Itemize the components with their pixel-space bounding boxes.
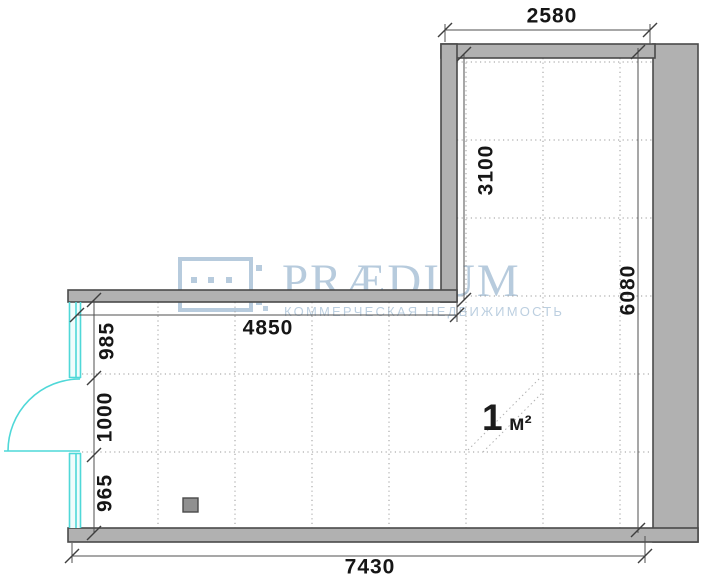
floor-plan-drawing: PRÆDIUM КОММЕРЧЕСКАЯ НЕДВИЖИМОСТЬ [0,0,709,579]
one-square-meter-hatch [468,377,543,452]
praedium-watermark: PRÆDIUM КОММЕРЧЕСКАЯ НЕДВИЖИМОСТЬ [180,255,564,319]
floor-plan-page: PRÆDIUM КОММЕРЧЕСКАЯ НЕДВИЖИМОСТЬ [0,0,709,579]
dim-label-door-opening: 1000 [94,392,117,443]
dim-label-lower-top: 4850 [243,317,294,340]
dim-label-upper-height: 3100 [475,145,498,196]
dim-label-left-upper-window: 985 [96,322,119,360]
column-marker [183,498,198,512]
dim-label-left-lower-window: 965 [94,474,117,512]
dim-label-right-height: 6080 [617,265,640,316]
dim-label-bottom-width: 7430 [345,556,396,579]
door [4,379,80,451]
area-value: 1 [482,397,503,438]
dim-label-top-width: 2580 [527,5,578,28]
door-swing-arc [8,379,80,451]
window-lower [69,453,81,528]
area-unit: м² [509,412,532,435]
watermark-tagline-text: КОММЕРЧЕСКАЯ НЕДВИЖИМОСТЬ [284,304,564,319]
walls [68,44,698,542]
wall-lower-top [68,290,457,302]
wall-bottom [68,528,698,542]
watermark-bullet-icon [263,306,268,311]
wall-upper-left [441,44,457,302]
wall-right-band [653,44,698,542]
area-label: 1 м² [482,397,532,438]
wall-top [441,44,655,58]
